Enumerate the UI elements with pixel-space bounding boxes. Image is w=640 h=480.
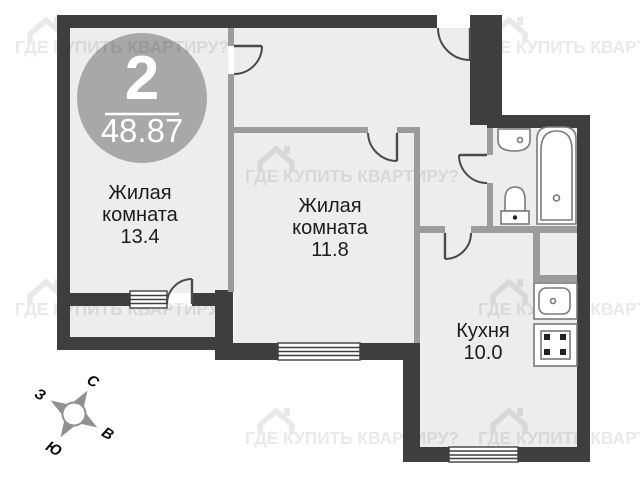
compass-hub xyxy=(58,398,89,429)
compass-rose: С В Ю З xyxy=(12,352,136,478)
wall-hallway-bottom xyxy=(57,337,233,350)
wall-shaft-left xyxy=(533,233,540,282)
watermark-text: ГДЕ КУПИТЬ КВАРТИРУ? xyxy=(245,166,459,186)
watermark-text: ГДЕ КУПИТЬ КВАРТИРУ? xyxy=(478,428,640,448)
floorplan-drawing: 2 48.87 ГДЕ КУПИТЬ КВАРТИРУ? ГДЕ КУПИТЬ … xyxy=(0,0,640,480)
wall-room1-bottom-left xyxy=(57,293,130,306)
wall-kitchen-left xyxy=(403,343,420,462)
wall-top xyxy=(57,15,437,28)
wall-room1-right-upper xyxy=(228,28,234,46)
watermark-tile: ГДЕ КУПИТЬ КВАРТИРУ? xyxy=(478,17,640,57)
room1-name-line2: комната xyxy=(102,204,179,226)
wall-bath-left-lower xyxy=(487,183,493,233)
wall-bath-top xyxy=(487,115,590,128)
house-chimney-icon xyxy=(284,146,290,154)
wall-bath-bottom xyxy=(471,226,577,233)
wall-room2-top-left xyxy=(234,127,368,133)
wall-right xyxy=(577,115,590,462)
floorplan-page: 2 48.87 ГДЕ КУПИТЬ КВАРТИРУ? ГДЕ КУПИТЬ … xyxy=(0,0,640,480)
watermark-text: ГДЕ КУПИТЬ КВАРТИРУ? xyxy=(15,37,229,57)
house-chimney-icon xyxy=(284,408,290,416)
wall-bath-left-upper xyxy=(487,128,493,155)
wall-room2-bottom-right xyxy=(360,343,403,360)
watermark-text: ГДЕ КУПИТЬ КВАРТИРУ? xyxy=(245,428,459,448)
kitchen-label: Кухня 10.0 xyxy=(456,320,510,364)
wall-room1-right-lower xyxy=(228,74,234,292)
room1-name-line1: Жилая xyxy=(108,182,171,204)
window-room2 xyxy=(278,343,360,360)
compass-east-label: В xyxy=(99,424,117,444)
wall-hall-column xyxy=(470,15,502,125)
house-chimney-icon xyxy=(517,408,523,416)
bathtub-icon xyxy=(537,127,576,224)
wall-corridor-bottom-left xyxy=(414,226,445,233)
compass-north-label: С xyxy=(84,371,103,392)
kitchen-area: 10.0 xyxy=(464,342,503,364)
badge-total-area: 48.87 xyxy=(101,112,184,149)
bathroom-sink-icon xyxy=(498,129,530,151)
wall-room2-right xyxy=(414,133,420,343)
stove-icon xyxy=(534,324,577,366)
room1-area: 13.4 xyxy=(121,226,160,248)
compass-west-label: З xyxy=(32,385,49,405)
room2-area: 11.8 xyxy=(311,239,348,261)
wall-shaft-bottom xyxy=(533,275,577,282)
kitchen-name: Кухня xyxy=(456,320,510,342)
wall-room1-bottom-right xyxy=(192,293,233,306)
compass-south-label: Ю xyxy=(43,438,65,461)
room2-name-line1: Жилая xyxy=(298,195,361,217)
watermark-text: ГДЕ КУПИТЬ КВАРТИРУ? xyxy=(478,37,640,57)
window-kitchen xyxy=(449,447,518,462)
wall-room2-top-right xyxy=(397,127,420,133)
house-chimney-icon xyxy=(517,17,523,25)
house-chimney-icon xyxy=(517,279,523,287)
window-room1 xyxy=(130,291,167,308)
wall-kitchen-bottom-right xyxy=(518,447,590,462)
room2-name-line2: комната xyxy=(292,217,369,239)
kitchen-sink-icon xyxy=(534,283,577,319)
